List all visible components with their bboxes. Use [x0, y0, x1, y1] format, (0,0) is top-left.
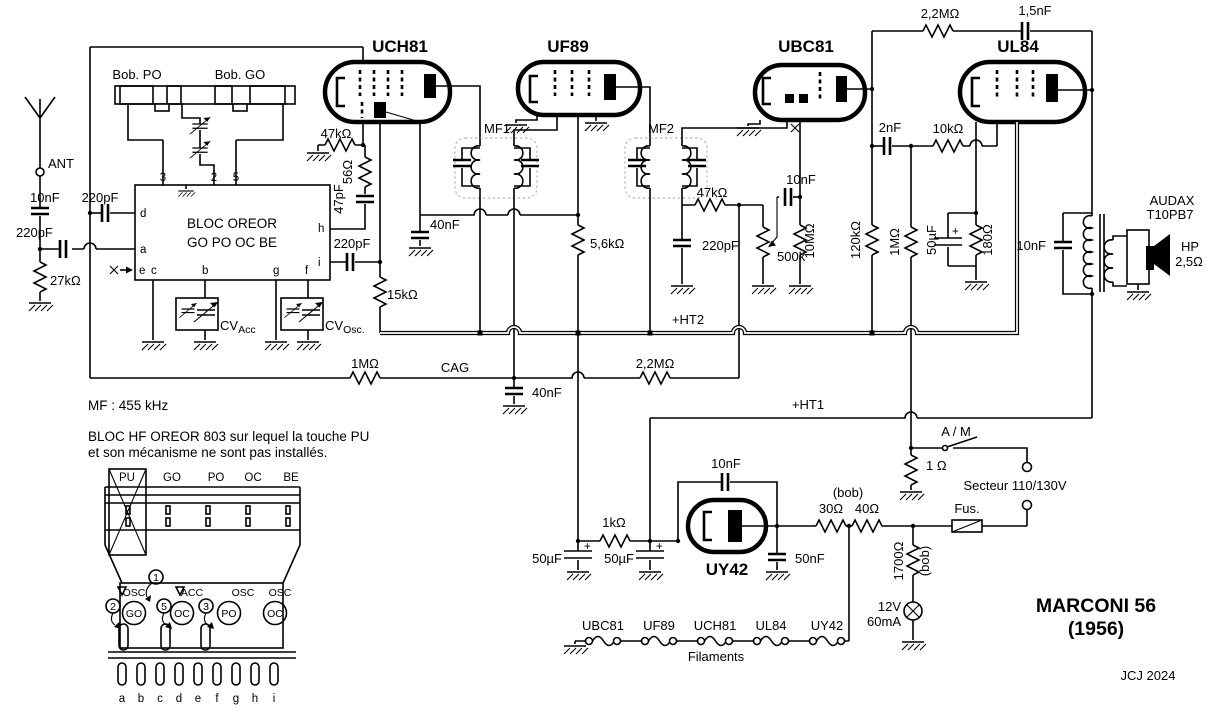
pin-i: i [318, 257, 321, 269]
label-ul84: UL84 [997, 37, 1039, 56]
digit-1: 1 [153, 572, 159, 584]
pin-a: a [140, 244, 147, 256]
anode-icon [1046, 74, 1058, 102]
mech-pin-i: i [273, 693, 276, 705]
coil-icon [471, 146, 480, 188]
pin-c: c [151, 265, 157, 277]
label-50uF-a: 50µF [532, 551, 562, 566]
label-2nF: 2nF [879, 120, 901, 135]
speaker-coil-icon [1146, 246, 1154, 270]
resistor-2M2-fb [923, 25, 953, 37]
pin-b: b [202, 265, 208, 277]
cag-line [90, 372, 739, 414]
label-fil-uch81: UCH81 [694, 618, 737, 633]
labels: UCH81 UF89 UBC81 UL84 UY42 ANT 10nF 220p… [16, 3, 1203, 705]
circle-po: PO [221, 608, 236, 620]
credit: JCJ 2024 [1121, 668, 1176, 683]
cap-10nF-uy42 [722, 473, 728, 491]
anode-icon [836, 76, 847, 102]
label-2M2-cag: 2,2MΩ [636, 356, 675, 371]
label-filaments: Filaments [688, 649, 745, 664]
coil-osc2: OSC [232, 587, 255, 599]
resistor-47k-det [695, 199, 725, 211]
label-15k: 15kΩ [387, 287, 418, 302]
mf2-cap-icon [628, 160, 646, 166]
label-1ohm: 1 Ω [926, 458, 947, 473]
x-mark [110, 266, 118, 274]
label-bob: (bob) [833, 485, 863, 500]
label-fil-ul84: UL84 [755, 618, 786, 633]
label-ubc81: UBC81 [778, 37, 834, 56]
ferrite-rod [115, 86, 295, 185]
label-40: 40Ω [855, 501, 879, 516]
diode-plate-icon [799, 94, 808, 103]
digit-2: 2 [110, 601, 116, 613]
ht2-rail [380, 122, 1017, 336]
label-50nF: 50nF [795, 551, 825, 566]
anode-icon [604, 74, 616, 100]
note-mf: MF : 455 kHz [88, 398, 169, 413]
mf1-cap-icon [521, 160, 539, 166]
label-220pF-det: 220pF [702, 238, 739, 253]
secondary-coil-icon [1104, 240, 1113, 282]
circle-oc: OC [174, 608, 190, 620]
label-bloc-line2: GO PO OC BE [187, 235, 277, 250]
label-ht1: +HT1 [792, 397, 824, 412]
key-pu: PU [119, 472, 135, 484]
label-t10pb7: T10PB7 [1147, 207, 1194, 222]
plus-sign: + [584, 541, 591, 553]
resistor-30 [816, 520, 846, 532]
resistor-15k [374, 277, 386, 307]
pin-e: e [139, 265, 145, 277]
cap-10nF-ant [31, 208, 49, 214]
circle-oc2: OC [267, 608, 283, 620]
label-180: 180Ω [980, 224, 995, 256]
cap-220pF-i [347, 253, 353, 271]
cv-acc-trimmer-icon [179, 303, 196, 317]
label-fil-uy42: UY42 [811, 618, 844, 633]
label-1M-cag: 1MΩ [351, 356, 379, 371]
label-secteur: Secteur 110/130V [963, 478, 1066, 493]
tube-ul84 [960, 62, 1092, 331]
label-audax: AUDAX [1150, 193, 1195, 208]
mains-terminal [1023, 501, 1032, 510]
label-10nF-out: 10nF [1016, 238, 1046, 253]
key-oc: OC [244, 472, 261, 484]
resistor-1k [600, 535, 630, 547]
resistor-2M2-cag [640, 372, 670, 384]
coil-osc: OSC [123, 587, 146, 599]
pin-2: 2 [211, 172, 217, 184]
mf2-cap-icon [688, 160, 706, 166]
digit-3: 3 [203, 601, 209, 613]
mech-pin-a: a [119, 693, 126, 705]
plus-sign: + [656, 541, 663, 553]
schematic-marconi-56: UCH81 UF89 UBC81 UL84 UY42 ANT 10nF 220p… [0, 0, 1212, 718]
mech-pin-f: f [215, 693, 219, 705]
speaker-cone-icon [1154, 234, 1170, 276]
mech-pin-h: h [252, 693, 258, 705]
resistor-120k [866, 225, 878, 255]
ground-icon [29, 303, 53, 311]
resistor-5k6 [572, 225, 584, 255]
grid-icon [555, 70, 589, 96]
label-1k: 1kΩ [602, 515, 626, 530]
label-27k: 27kΩ [50, 273, 81, 288]
mech-pin-e: e [195, 693, 201, 705]
key-go: GO [163, 472, 181, 484]
cathode-icon [704, 512, 712, 540]
label-cag: CAG [441, 360, 469, 375]
label-220pF-d: 220pF [82, 190, 119, 205]
resistor-56 [359, 157, 371, 187]
label-1700: 1700Ω [891, 541, 906, 580]
cap-10nF-vol [785, 188, 791, 206]
label-cv-osc: CVOsc. [325, 318, 365, 336]
mech-pin-c: c [157, 693, 163, 705]
label-uf89: UF89 [547, 37, 589, 56]
cap-220pF-det [673, 240, 691, 246]
label-40nF-screen: 40nF [430, 217, 460, 232]
cv-osc-main-icon [299, 302, 323, 322]
grid-icon [360, 70, 402, 96]
label-1M-grid: 1MΩ [887, 228, 902, 256]
label-mf2: MF2 [648, 121, 674, 136]
pin-d: d [140, 208, 146, 220]
cv-osc-trimmer-icon [284, 303, 301, 317]
label-10nF-ant: 10nF [30, 190, 60, 205]
diode-plate-icon [785, 94, 794, 103]
key-po: PO [208, 472, 225, 484]
cap-40nF-cag [505, 388, 523, 394]
title-model: MARCONI 56 [1036, 595, 1156, 617]
plus-sign: + [952, 226, 959, 238]
triode-anode-icon [374, 102, 386, 118]
coil-osc3: OSC [269, 587, 292, 599]
label-10k: 10kΩ [933, 121, 964, 136]
cap-220pF-d [102, 204, 108, 222]
key-be: BE [283, 472, 299, 484]
speaker-frame [1127, 230, 1149, 284]
label-5k6: 5,6kΩ [590, 236, 625, 251]
label-ht2: +HT2 [672, 312, 704, 327]
primary-coil-icon [1083, 216, 1092, 289]
label-40nF-cag: 40nF [532, 385, 562, 400]
mech-pin-d: d [176, 693, 182, 705]
resistor-40 [852, 520, 882, 532]
label-2M2-fb: 2,2MΩ [921, 6, 960, 21]
label-mf1: MF1 [484, 121, 510, 136]
anode-icon [728, 510, 742, 542]
label-10M: 10MΩ [802, 223, 817, 258]
circle-go: GO [126, 608, 142, 620]
label-10nF-vol: 10nF [786, 172, 816, 187]
note-line1: BLOC HF OREOR 803 sur lequel la touche P… [88, 429, 369, 444]
cathode-icon [972, 78, 980, 106]
output-stage [1054, 213, 1170, 418]
grid-icon [997, 70, 1033, 100]
label-am: A / M [941, 424, 971, 439]
mf1-transformer [453, 115, 557, 378]
label-bob-go: Bob. GO [215, 67, 266, 82]
anode-icon [424, 74, 436, 98]
title-year: (1956) [1068, 618, 1124, 640]
label-56: 56Ω [340, 160, 355, 184]
label-fil-ubc81: UBC81 [582, 618, 624, 633]
resistor-27k [34, 262, 46, 292]
label-47k-grid: 47kΩ [321, 126, 352, 141]
pin-h: h [318, 223, 324, 235]
label-fil-uf89: UF89 [643, 618, 675, 633]
pin-5: 5 [233, 172, 239, 184]
ant-terminal [36, 168, 44, 176]
label-ant: ANT [48, 156, 74, 171]
mains-terminal [1023, 463, 1032, 472]
label-120k: 120kΩ [848, 221, 863, 259]
keyboard-block-drawing [105, 469, 300, 685]
schematic-canvas: UCH81 UF89 UBC81 UL84 UY42 ANT 10nF 220p… [0, 0, 1212, 718]
label-uch81: UCH81 [372, 37, 428, 56]
label-50uF-b: 50µF [604, 551, 634, 566]
label-uy42: UY42 [706, 560, 749, 579]
cap-10nF-out [1054, 242, 1072, 248]
resistor-10k [933, 140, 963, 152]
core-icon [1100, 214, 1104, 292]
cathode-icon [763, 78, 771, 104]
tube-uf89 [505, 62, 650, 541]
label-12v: 12V [878, 599, 901, 614]
pin-3: 3 [160, 172, 166, 184]
tube-ubc81 [737, 65, 872, 136]
label-cv-acc: CVAcc [220, 318, 256, 336]
cap-50nF [768, 554, 786, 560]
label-60ma: 60mA [867, 614, 901, 629]
label-bob2: (bob) [917, 546, 932, 576]
label-47pF: 47pF [331, 184, 346, 214]
label-1n5: 1,5nF [1018, 3, 1051, 18]
label-bob-po: Bob. PO [112, 67, 161, 82]
resistor-1M-grid [905, 227, 917, 257]
cv-acc-main-icon [194, 302, 218, 322]
resistor-1 [905, 455, 917, 485]
label-47k-det: 47kΩ [697, 185, 728, 200]
keyboard-pins [118, 663, 278, 685]
feedback-rail [872, 22, 1094, 213]
digit-5: 5 [161, 601, 167, 613]
pin-g: g [273, 265, 279, 277]
coil-acc: ACC [181, 587, 204, 599]
resistor-1M-cag [350, 372, 380, 384]
label-50uF-k: 50µF [924, 225, 939, 255]
label-220pF-i: 220pF [334, 236, 371, 251]
x-mark [791, 124, 799, 132]
power-supply [564, 437, 1032, 650]
cap-40nF-screen [411, 232, 429, 238]
ht1-rail [650, 412, 1092, 541]
potentiometer-500k [757, 227, 769, 257]
cathode-icon [530, 76, 538, 102]
mf1-cap-icon [453, 160, 471, 166]
label-10nF-uy: 10nF [711, 456, 741, 471]
label-fus: Fus. [954, 501, 979, 516]
label-hp: HP [1181, 239, 1199, 254]
label-bloc-line1: BLOC OREOR [187, 216, 277, 231]
cap-2nF [884, 137, 890, 155]
cap-220pF-ant [60, 240, 66, 258]
note-line2: et son mécanisme ne sont pas installés. [88, 445, 327, 460]
label-220pF-ant: 220pF [16, 225, 53, 240]
cap-47pF [356, 196, 374, 202]
mech-pin-g: g [233, 693, 239, 705]
label-30: 30Ω [819, 501, 843, 516]
cathode-icon [337, 78, 345, 106]
mech-pin-b: b [138, 693, 144, 705]
label-2o5: 2,5Ω [1175, 254, 1203, 269]
